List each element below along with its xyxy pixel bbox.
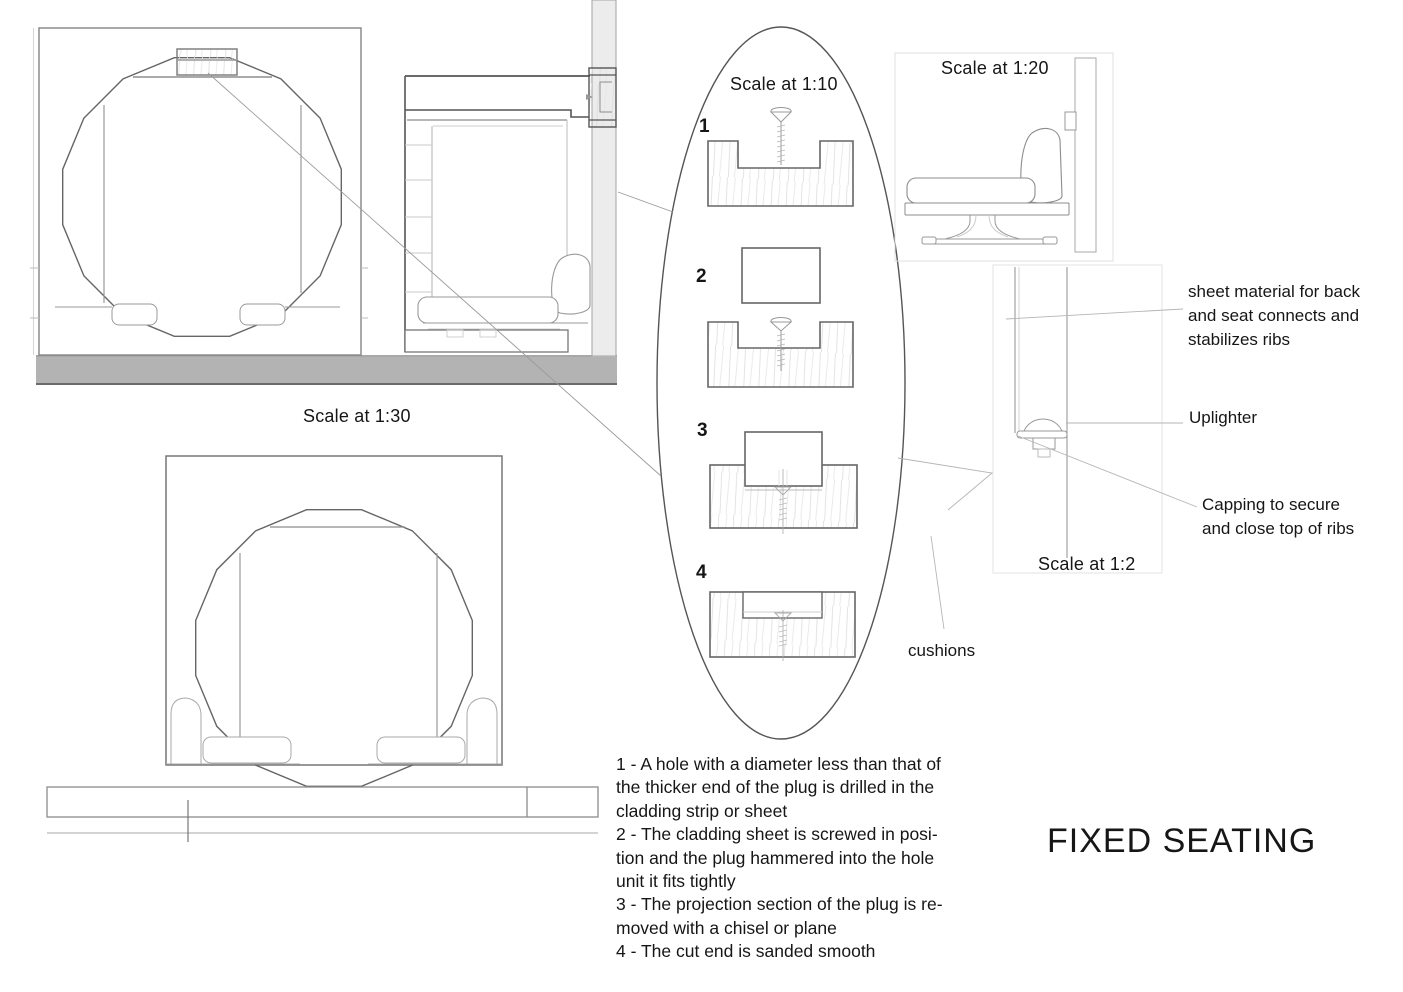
seat-pedestal-1-20 [922,215,1057,244]
floor-band-bottom [47,787,598,842]
wall-strip [592,0,616,356]
view-1-20 [895,53,1113,261]
scale-label-1-10: Scale at 1:10 [730,74,838,95]
detail-step-2 [708,248,853,387]
construction-notes: 1 - A hole with a diameter less than tha… [616,753,961,964]
screw-free [771,108,791,166]
scale-label-1-30: Scale at 1:30 [303,406,411,427]
leader-detail-pointer [898,458,992,510]
bottom-seats [166,698,502,764]
leader-plug-section [618,192,673,212]
detail-ellipse [657,27,905,739]
section-seat [418,254,590,329]
plug-block-section [586,68,616,127]
detail-step-1 [708,108,853,207]
step-number-1: 1 [699,116,710,138]
drawing-sheet: Scale at 1:30 Scale at 1:10 Scale at 1:2… [0,0,1403,992]
seat-cushion-1-20 [907,178,1035,203]
detail-step-3 [710,432,857,534]
annotation-capping: Capping to secure and close top of ribs [1202,493,1354,541]
annotation-sheet-material: sheet material for back and seat connect… [1188,280,1360,352]
step-number-3: 3 [697,420,708,442]
wall-1-20 [1075,58,1096,252]
leader-cushions [931,536,944,629]
section-view [405,0,616,356]
leader-sheet-material [1006,309,1183,319]
detail-step-4 [710,592,855,661]
plug-block-front [177,49,237,75]
step-number-4: 4 [696,562,707,584]
floor-band-top [36,356,617,384]
scale-label-1-2: Scale at 1:2 [1038,554,1135,575]
step-number-2: 2 [696,266,707,288]
annotation-cushions: cushions [908,639,975,663]
bottom-elevation-view [47,456,598,842]
annotation-uplighter: Uplighter [1189,406,1257,430]
front-seats [55,304,340,325]
scale-label-1-20: Scale at 1:20 [941,58,1049,79]
page-title: FIXED SEATING [1047,822,1316,861]
seat-base-1-20 [905,203,1069,215]
section-base [405,330,568,352]
uplighter-fitting [1017,419,1067,457]
leader-capping [1018,436,1197,507]
rib-stack [405,126,432,310]
front-elevation-view [30,28,368,355]
